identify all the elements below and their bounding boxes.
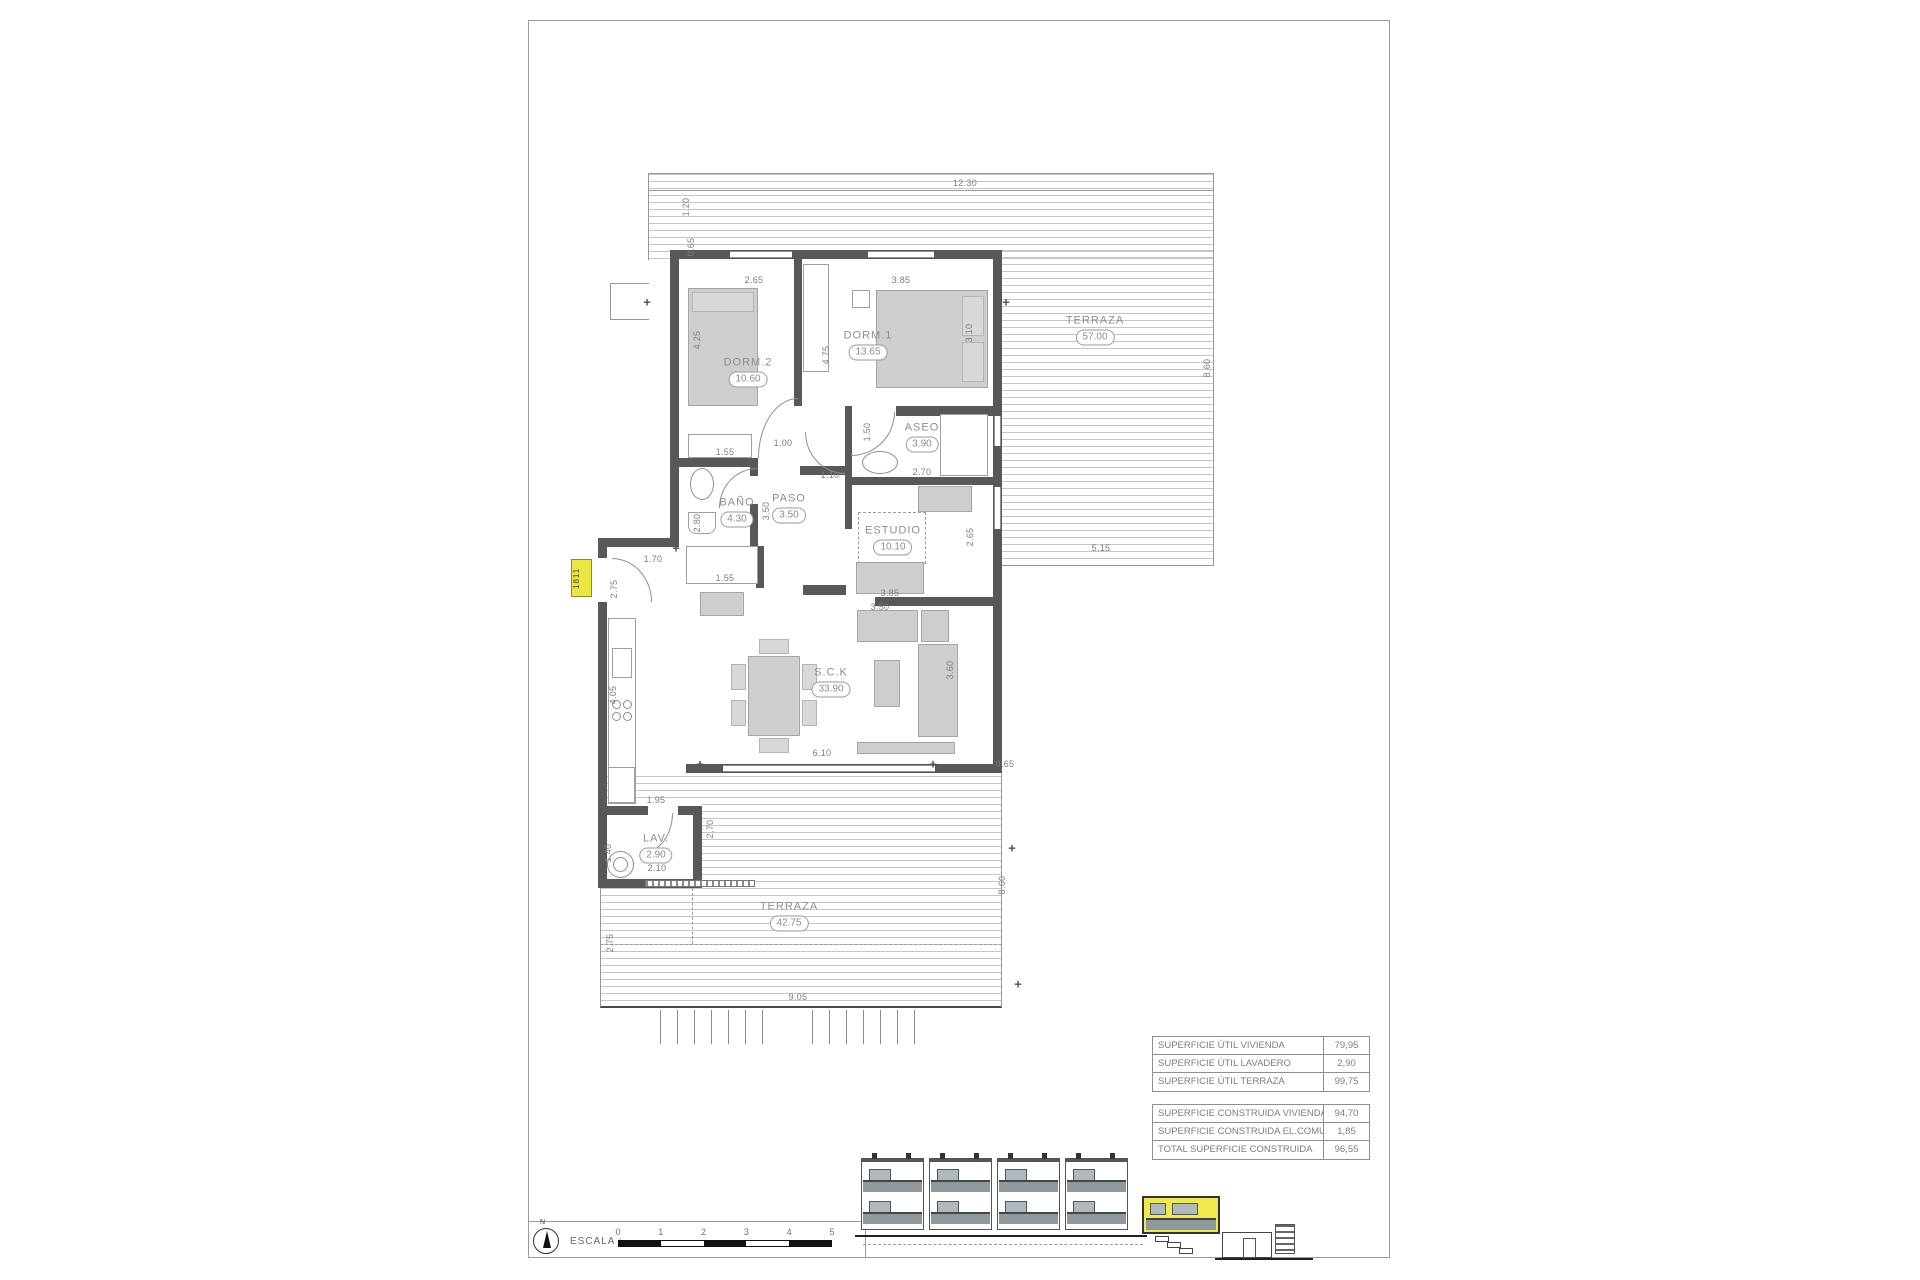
elevation-floor <box>998 1167 1059 1195</box>
balcony-rail <box>931 1180 990 1192</box>
chair <box>759 738 789 753</box>
scale-bar-segment <box>746 1241 788 1246</box>
pillow <box>692 292 754 312</box>
elevation-highlighted-unit <box>1142 1196 1220 1234</box>
room-name: DORM.1 <box>844 330 893 342</box>
useful-areas-table: SUPERFICIE ÚTIL VIVIENDA79,95SUPERFICIE … <box>1152 1036 1370 1092</box>
dimension-label: 2.10 <box>648 863 667 873</box>
elevation-floor <box>1066 1199 1127 1227</box>
room-area-badge: 13.65 <box>848 345 887 361</box>
room-name: TERRAZA <box>1066 315 1124 327</box>
table-label: SUPERFICIE CONSTRUIDA EL.COMUNES <box>1153 1123 1323 1140</box>
dimension-label: 2.70 <box>913 467 932 477</box>
table-value: 99,75 <box>1323 1073 1369 1091</box>
wall <box>598 538 607 558</box>
scale-tick: 0 <box>615 1227 620 1237</box>
dimension-label: 1.00 <box>774 438 793 448</box>
north-needle-icon <box>543 1231 551 1248</box>
axis-cross: + <box>696 757 704 772</box>
dimension-label: 2.65 <box>965 528 975 547</box>
room-name: TERRAZA <box>760 901 818 913</box>
dimension-label: 0.65 <box>686 238 696 257</box>
scale-tick: 2 <box>701 1227 706 1237</box>
building-elevation <box>855 1148 1365 1266</box>
scale-bar-segment <box>704 1241 746 1246</box>
scale-tick: 1 <box>658 1227 663 1237</box>
room-label: DORM.210.60 <box>724 357 773 388</box>
dimension-label: 2.65 <box>745 275 764 285</box>
axis-cross: + <box>929 757 937 772</box>
elevation-dashed-base <box>863 1244 1143 1245</box>
dimension-label: 2.70 <box>705 820 715 839</box>
window-icon <box>1172 1203 1198 1215</box>
roof-slab <box>1066 1159 1127 1162</box>
terrace-dashed-line <box>600 944 1002 945</box>
hob-burner <box>623 700 632 709</box>
axis-cross: + <box>672 541 680 556</box>
balcony-rail <box>1146 1218 1216 1230</box>
chair <box>759 639 789 654</box>
wall <box>598 806 648 815</box>
dimension-label: 1.50 <box>862 423 872 442</box>
room-label: LAV.2.90 <box>639 833 672 864</box>
hob-burner <box>612 712 621 721</box>
axis-cross: + <box>1002 295 1010 310</box>
table-value: 1,85 <box>1323 1123 1369 1140</box>
armchair <box>921 610 949 642</box>
balcony-rail <box>863 1180 922 1192</box>
table-row: SUPERFICIE CONSTRUIDA VIVIENDA94,70 <box>1153 1105 1369 1123</box>
table-row: SUPERFICIE ÚTIL TERRAZA99,75 <box>1153 1073 1369 1091</box>
sideboard <box>857 742 955 754</box>
balcony-rail <box>1067 1212 1126 1224</box>
room-name: BAÑO <box>719 497 754 509</box>
scale-bar <box>618 1240 832 1247</box>
room-label: S.C.K33.90 <box>811 667 850 698</box>
dimension-label: 1.10 <box>821 470 840 480</box>
elevation-stair-step <box>1179 1248 1193 1254</box>
dimension-label: 9.05 <box>789 992 808 1002</box>
wall <box>670 250 1001 259</box>
dimension-label: 12.30 <box>953 178 977 188</box>
room-area-badge: 10.60 <box>728 372 767 388</box>
scale-ticks: 012345 <box>618 1227 832 1237</box>
elevation-floor <box>1066 1167 1127 1195</box>
elevation-ground-line-right <box>1215 1258 1313 1260</box>
axis-cross: + <box>643 295 651 310</box>
dimension-label: 2.80 <box>692 514 702 533</box>
table-row: SUPERFICIE ÚTIL LAVADERO2,90 <box>1153 1055 1369 1073</box>
elevation-annex <box>1222 1232 1272 1258</box>
window-dorm1 <box>868 251 934 258</box>
roof-slab <box>862 1159 923 1162</box>
dimension-label: 4.75 <box>821 346 831 365</box>
room-name: ASEO <box>905 422 940 434</box>
elevation-rail-block <box>1275 1224 1295 1254</box>
window-icon <box>1150 1203 1166 1215</box>
roof-slab <box>998 1159 1059 1162</box>
room-name: ESTUDIO <box>865 525 921 537</box>
terrace-fence-left <box>660 1010 772 1044</box>
dimension-label: 3.50 <box>871 602 890 612</box>
dim-tick <box>1213 186 1214 195</box>
dimension-label: 1.95 <box>647 795 666 805</box>
table-value: 94,70 <box>1323 1105 1369 1122</box>
wall <box>670 458 679 546</box>
room-area-badge: 4.30 <box>720 512 753 528</box>
room-label: TERRAZA42.75 <box>760 901 818 932</box>
room-area-badge: 57.00 <box>1075 330 1114 346</box>
table-label: SUPERFICIE ÚTIL TERRAZA <box>1153 1073 1323 1091</box>
dim-tick <box>648 186 649 195</box>
scale-bar-segment <box>661 1241 703 1246</box>
chair <box>802 700 817 726</box>
wall <box>670 458 758 467</box>
window-dorm2 <box>730 251 792 258</box>
coffee-table <box>874 660 900 707</box>
upper-terrace-deck <box>648 173 1214 260</box>
room-label: PASO3.50 <box>772 493 806 524</box>
upper-terrace-deck-right <box>1001 250 1214 566</box>
room-area-badge: 10.10 <box>873 540 912 556</box>
roof-slab <box>930 1159 991 1162</box>
scale-tick: 5 <box>829 1227 834 1237</box>
dimension-label: 2.75 <box>605 934 615 953</box>
sink-bano <box>690 468 714 500</box>
washing-machine-drum <box>613 857 628 872</box>
room-area-badge: 3.90 <box>905 437 938 453</box>
wall <box>803 585 846 595</box>
drawing-sheet: 1811 + + + + + + + DORM.210.60DORM.113.6… <box>0 0 1920 1280</box>
axis-cross: + <box>1014 977 1022 992</box>
dimension-label: 3.85 <box>892 275 911 285</box>
dimension-label: 3.50 <box>761 502 771 521</box>
room-name: S.C.K <box>811 667 850 679</box>
table-value: 2,90 <box>1323 1055 1369 1072</box>
dimension-label: 3.10 <box>964 324 974 343</box>
room-name: LAV. <box>639 833 672 845</box>
scale-tick: 3 <box>744 1227 749 1237</box>
elevation-floor <box>862 1167 923 1195</box>
dimension-label: 0.65 <box>996 759 1015 769</box>
nightstand <box>852 290 870 308</box>
elevation-floor <box>998 1199 1059 1227</box>
wall <box>598 538 679 547</box>
room-name: PASO <box>772 493 806 505</box>
elevation-unit <box>861 1158 924 1230</box>
wall <box>678 806 702 815</box>
kitchen-cabinet <box>608 767 635 803</box>
table-row: SUPERFICIE CONSTRUIDA EL.COMUNES1,85 <box>1153 1123 1369 1141</box>
terrace-fence-right <box>812 1010 924 1044</box>
elevation-unit <box>1065 1158 1128 1230</box>
scale-tick: 4 <box>787 1227 792 1237</box>
scale-bar-segment <box>619 1241 661 1246</box>
wall <box>794 258 802 406</box>
wall <box>845 477 1001 485</box>
shower-aseo <box>940 414 988 476</box>
scale-bar-segment <box>789 1241 831 1246</box>
sofa-right <box>918 644 958 737</box>
room-name: DORM.2 <box>724 357 773 369</box>
window-estudio <box>994 487 1001 529</box>
wall <box>598 602 607 806</box>
table-value: 79,95 <box>1323 1037 1369 1054</box>
elevation-unit <box>929 1158 992 1230</box>
dimension-label: 1.40 <box>603 844 613 863</box>
dimension-label: 8.60 <box>997 876 1007 895</box>
balcony-rail <box>999 1212 1058 1224</box>
room-area-badge: 3.50 <box>772 508 805 524</box>
terrace-dashed-line-v <box>692 888 693 944</box>
table-label: SUPERFICIE ÚTIL LAVADERO <box>1153 1055 1323 1072</box>
room-area-badge: 42.75 <box>769 916 808 932</box>
room-area-badge: 2.90 <box>639 848 672 864</box>
wall <box>875 597 1001 606</box>
door-icon <box>1243 1238 1256 1258</box>
balcony-rail <box>999 1180 1058 1192</box>
dimension-label: 4.25 <box>692 331 702 350</box>
elevation-floor <box>930 1167 991 1195</box>
elevation-unit <box>997 1158 1060 1230</box>
room-label: ASEO3.90 <box>905 422 940 453</box>
balcony-rail <box>1067 1180 1126 1192</box>
room-label: TERRAZA57.00 <box>1066 315 1124 346</box>
chair <box>731 700 746 726</box>
dimension-label: 3.60 <box>945 661 955 680</box>
unit-number-tag: 1811 <box>571 559 592 597</box>
axis-cross: + <box>1008 841 1016 856</box>
kitchen-sink <box>612 648 632 678</box>
wall <box>670 250 679 466</box>
room-label: DORM.113.65 <box>844 330 893 361</box>
room-area-badge: 33.90 <box>811 682 850 698</box>
dimension-label: 1.55 <box>716 447 735 457</box>
dimension-label: 5.15 <box>1092 543 1111 553</box>
dimension-label: 6.10 <box>813 748 832 758</box>
hob-burner <box>623 712 632 721</box>
dimension-label: 4.05 <box>608 686 618 705</box>
scale-label: ESCALA : <box>570 1236 622 1247</box>
desk-estudio <box>918 486 972 512</box>
dimension-label: 3.85 <box>881 588 900 598</box>
chair <box>731 664 746 690</box>
dimension-label: 2.75 <box>609 580 619 599</box>
table-label: SUPERFICIE CONSTRUIDA VIVIENDA <box>1153 1105 1323 1122</box>
table-label: SUPERFICIE ÚTIL VIVIENDA <box>1153 1037 1323 1054</box>
dimension-label: 1.20 <box>681 198 691 217</box>
laundry-vent <box>645 880 755 887</box>
north-label: N <box>540 1219 545 1226</box>
dimension-label: 1.70 <box>644 554 663 564</box>
balcony-rail <box>931 1212 990 1224</box>
dimension-label: 8.60 <box>1202 359 1212 378</box>
pillow <box>962 342 984 382</box>
sliding-door-terrace <box>723 765 935 772</box>
room-label: ESTUDIO10.10 <box>865 525 921 556</box>
elevation-ground-line <box>855 1235 1147 1237</box>
balcony-rail <box>863 1212 922 1224</box>
dim-line-top <box>648 190 1214 191</box>
room-label: BAÑO4.30 <box>719 497 754 528</box>
dining-table <box>748 656 800 736</box>
window-aseo <box>994 416 1001 446</box>
dimension-label: 1.55 <box>716 573 735 583</box>
sink-aseo <box>862 451 898 474</box>
wall <box>693 806 702 888</box>
table-row: SUPERFICIE ÚTIL VIVIENDA79,95 <box>1153 1037 1369 1055</box>
wall <box>845 484 852 529</box>
hall-cabinet <box>700 592 744 616</box>
elevation-floor <box>930 1199 991 1227</box>
elevation-floor <box>862 1199 923 1227</box>
sofa-top <box>857 610 918 642</box>
